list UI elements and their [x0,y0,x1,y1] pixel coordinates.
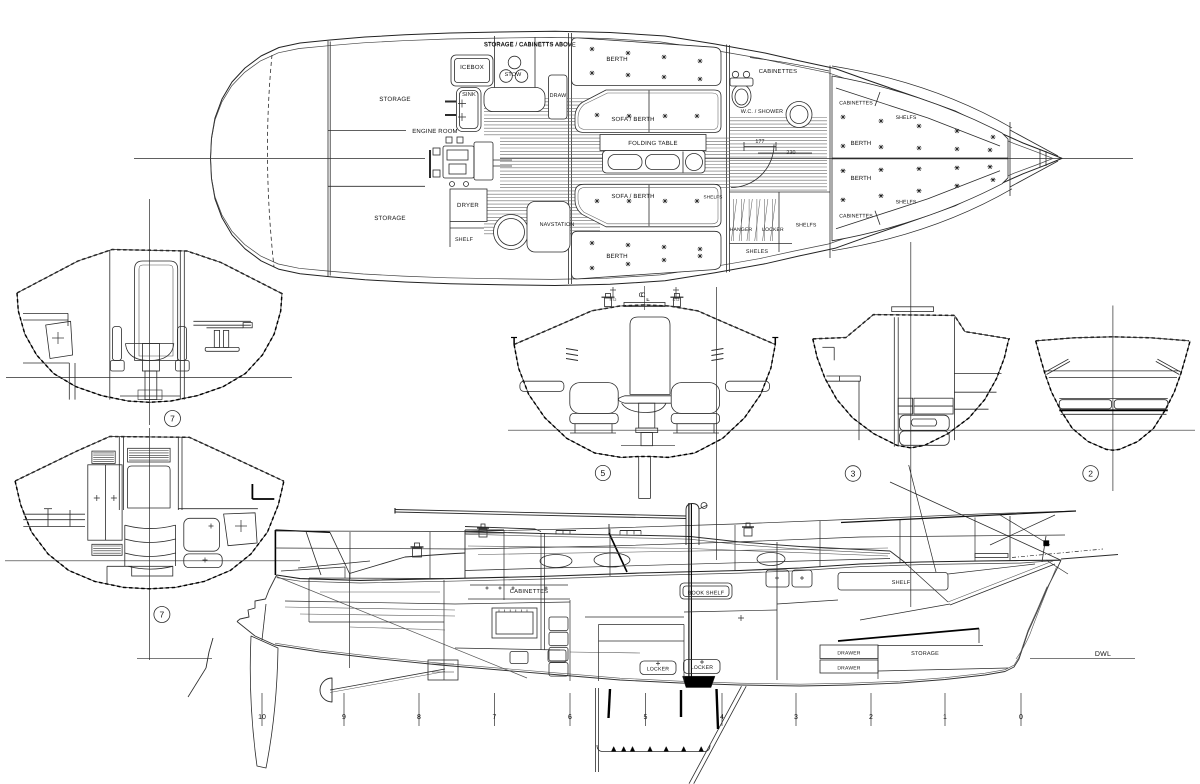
svg-text:5: 5 [601,468,606,478]
svg-text:ST2: ST2 [610,298,617,302]
svg-text:BERTH: BERTH [606,56,627,63]
svg-text:3: 3 [851,469,856,479]
svg-text:NAVSTATION: NAVSTATION [540,222,575,228]
svg-text:CABINETTES: CABINETTES [759,68,797,75]
svg-text:ENGINE ROOM: ENGINE ROOM [412,128,458,135]
svg-text:DWL: DWL [1095,651,1111,658]
svg-text:SOFA / BERTH: SOFA / BERTH [611,193,654,200]
svg-text:STOW: STOW [505,72,522,78]
svg-text:177: 177 [755,139,764,145]
svg-text:STORAGE: STORAGE [379,96,411,103]
svg-text:BERTH: BERTH [851,175,872,182]
svg-text:DRAWER: DRAWER [837,651,860,657]
svg-text:3: 3 [794,714,798,721]
svg-text:CABINETTES: CABINETTES [839,101,873,107]
svg-text:SHELFS: SHELFS [703,195,722,200]
svg-text:SOFA / BERTH: SOFA / BERTH [611,116,654,123]
svg-text:BOOK SHELF: BOOK SHELF [688,591,725,597]
svg-text:HANGER: HANGER [730,227,753,233]
svg-text:SINK: SINK [462,92,476,98]
svg-text:C: C [639,292,644,299]
svg-text:6: 6 [568,714,572,721]
svg-text:DRYER: DRYER [457,202,479,209]
svg-text:SHELFS: SHELFS [896,115,917,121]
svg-text:5: 5 [644,714,648,721]
svg-text:STORAGE / CABINETTS ABOVE: STORAGE / CABINETTS ABOVE [484,42,576,49]
svg-text:2: 2 [1088,468,1093,478]
svg-text:W.C. / SHOWER: W.C. / SHOWER [741,109,783,115]
svg-text:SHELFS: SHELFS [796,223,817,229]
svg-text:0: 0 [1019,714,1023,721]
svg-text:STORAGE: STORAGE [911,651,939,657]
svg-text:2: 2 [869,714,873,721]
svg-text:7: 7 [493,714,497,721]
svg-text:SHELF: SHELF [892,580,911,586]
svg-text:7: 7 [160,610,165,620]
svg-text:LOCKER: LOCKER [647,667,670,673]
svg-text:STORAGE: STORAGE [374,215,406,222]
svg-text:SHELFS: SHELFS [896,200,917,206]
svg-text:CABINETTES: CABINETTES [510,588,548,595]
svg-text:DRAW: DRAW [550,93,567,99]
svg-text:BERTH: BERTH [606,253,627,260]
svg-text:4: 4 [720,714,724,721]
svg-text:1: 1 [943,714,947,721]
svg-text:SHELES: SHELES [746,249,768,255]
svg-text:CABINETTES: CABINETTES [839,214,873,220]
svg-text:7: 7 [170,414,175,424]
svg-text:ICEBOX: ICEBOX [460,64,484,71]
svg-text:BERTH: BERTH [851,140,872,147]
svg-text:FOLDING TABLE: FOLDING TABLE [628,140,677,147]
svg-text:10: 10 [258,714,266,721]
svg-text:LOCKER: LOCKER [691,665,714,671]
svg-text:SHELF: SHELF [455,237,474,243]
svg-text:8: 8 [417,714,421,721]
svg-text:DRAWER: DRAWER [837,666,860,672]
svg-text:9: 9 [342,714,346,721]
svg-text:LOCKER: LOCKER [762,227,784,233]
